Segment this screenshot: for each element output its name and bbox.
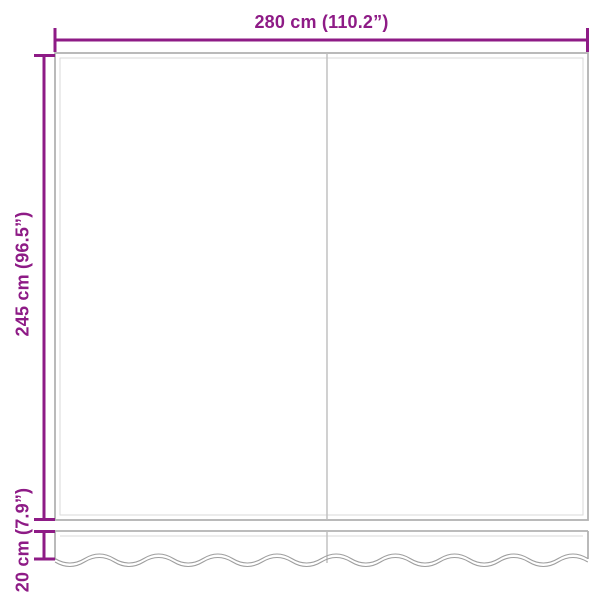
diagram-linework [0,0,600,600]
height-dimension-label: 245 cm (96.5”) [13,212,34,337]
awning-dimension-diagram: 280 cm (110.2”) 245 cm (96.5”) 20 cm (7.… [0,0,600,600]
fabric-panel-outline [55,53,588,520]
fabric-panel-inner-line [60,58,583,515]
width-dimension-label: 280 cm (110.2”) [55,12,588,33]
valance-dimension-label: 20 cm (7.9”) [13,488,34,592]
